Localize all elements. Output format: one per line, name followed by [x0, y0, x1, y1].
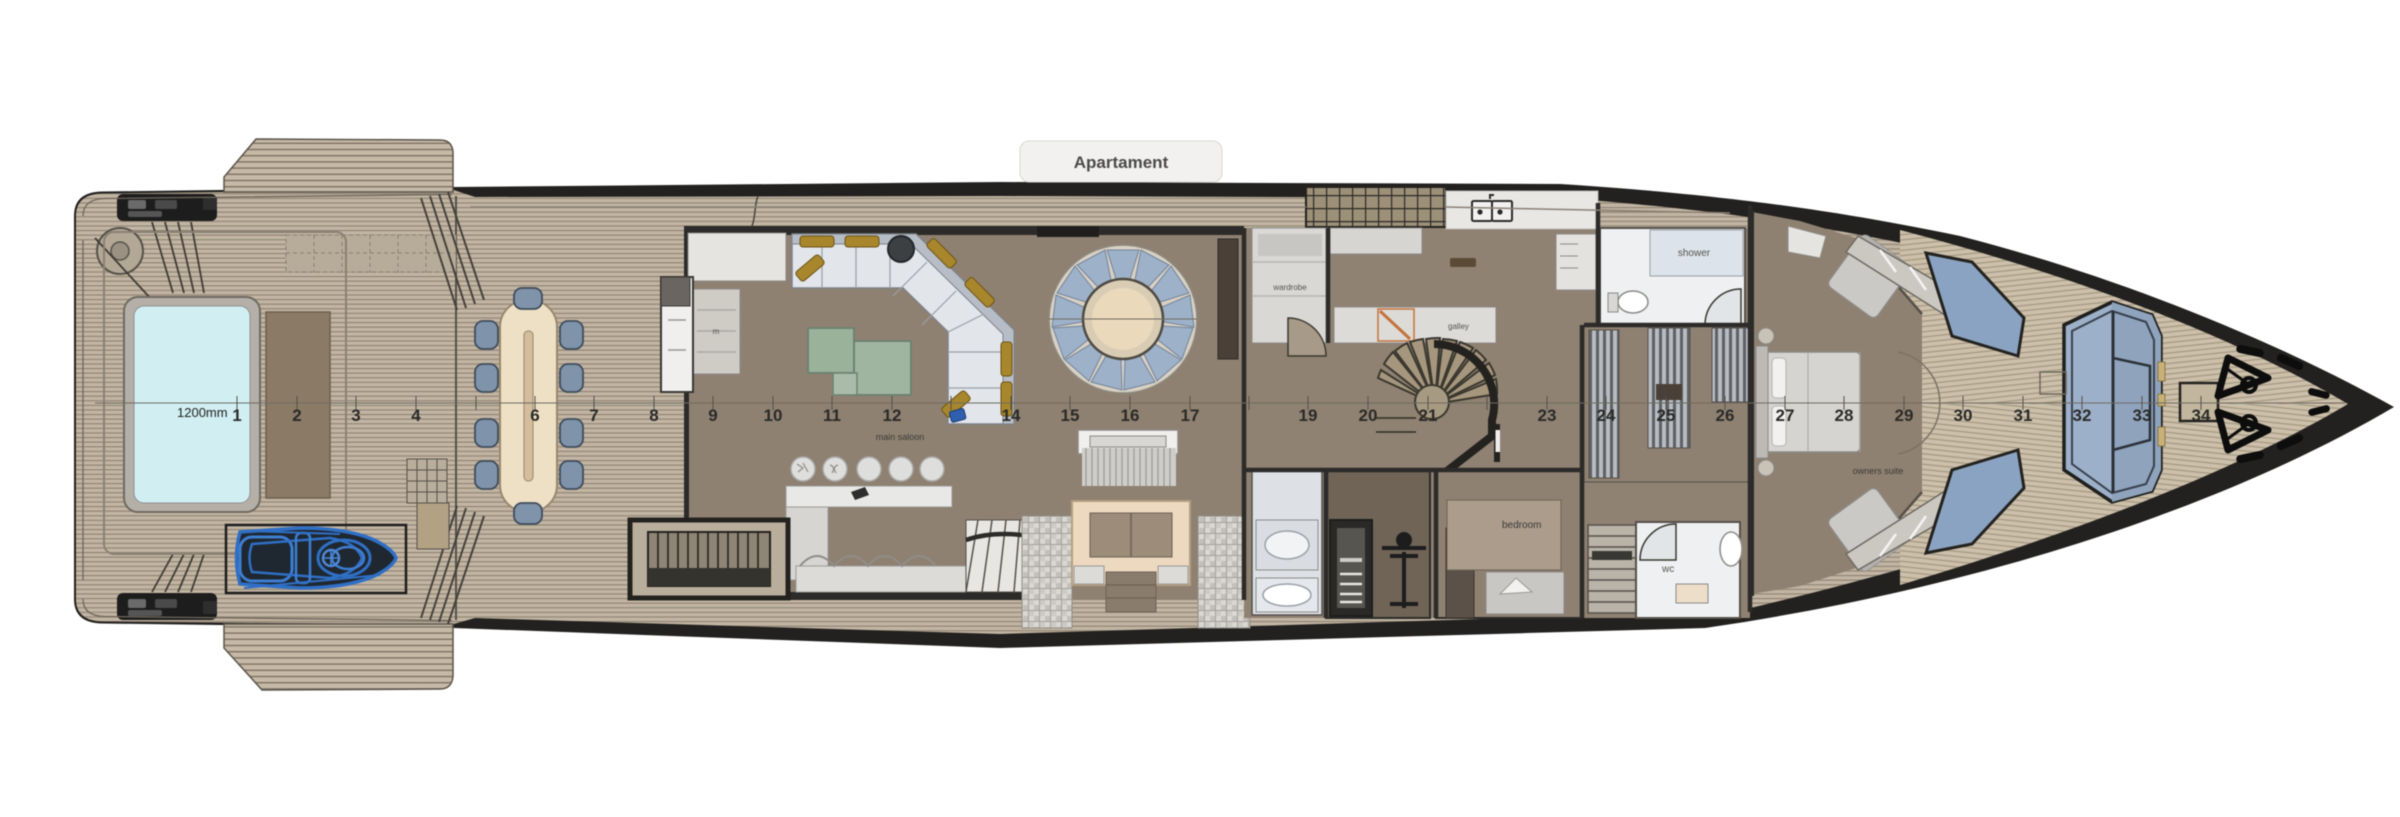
svg-text:28: 28: [1835, 406, 1854, 425]
svg-text:21: 21: [1419, 406, 1438, 425]
svg-text:8: 8: [649, 406, 658, 425]
svg-text:25: 25: [1657, 406, 1676, 425]
svg-text:bedroom: bedroom: [1502, 520, 1541, 531]
svg-text:27: 27: [1776, 406, 1795, 425]
svg-text:29: 29: [1895, 406, 1914, 425]
svg-text:4: 4: [411, 406, 421, 425]
svg-text:owners suite: owners suite: [1853, 466, 1904, 476]
svg-text:m: m: [713, 327, 720, 336]
svg-text:1: 1: [232, 406, 241, 425]
svg-text:9: 9: [708, 406, 717, 425]
svg-text:shower: shower: [1678, 248, 1711, 259]
svg-text:32: 32: [2073, 406, 2092, 425]
svg-text:30: 30: [1954, 406, 1973, 425]
svg-text:galley: galley: [1448, 322, 1469, 331]
svg-text:23: 23: [1538, 406, 1557, 425]
svg-text:19: 19: [1299, 406, 1318, 425]
svg-text:11: 11: [823, 406, 841, 425]
svg-text:3: 3: [351, 406, 360, 425]
svg-text:2: 2: [292, 406, 301, 425]
svg-text:7: 7: [589, 406, 598, 425]
svg-text:24: 24: [1597, 406, 1616, 425]
svg-text:16: 16: [1121, 406, 1140, 425]
svg-text:wardrobe: wardrobe: [1272, 283, 1307, 292]
svg-text:17: 17: [1181, 406, 1200, 425]
svg-text:6: 6: [530, 406, 539, 425]
svg-text:12: 12: [883, 406, 902, 425]
svg-text:10: 10: [764, 406, 783, 425]
svg-text:wc: wc: [1661, 564, 1674, 575]
svg-text:main saloon: main saloon: [876, 432, 925, 442]
svg-text:14: 14: [1002, 406, 1021, 425]
svg-text:20: 20: [1359, 406, 1378, 425]
svg-text:15: 15: [1061, 406, 1080, 425]
svg-text:Apartament: Apartament: [1074, 153, 1169, 172]
svg-text:31: 31: [2014, 406, 2033, 425]
svg-text:33: 33: [2133, 406, 2152, 425]
svg-text:34: 34: [2192, 406, 2211, 425]
svg-text:26: 26: [1716, 406, 1735, 425]
svg-text:1200mm: 1200mm: [177, 405, 228, 420]
